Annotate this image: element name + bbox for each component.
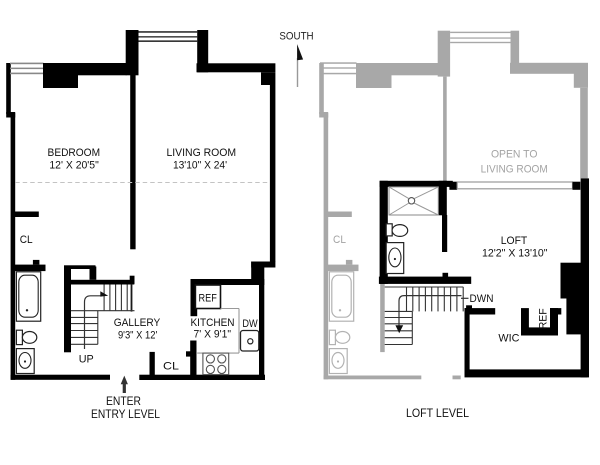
svg-text:REF: REF <box>537 308 549 329</box>
svg-text:12'2" X 13'10": 12'2" X 13'10" <box>482 248 548 260</box>
svg-text:9'3" X 12': 9'3" X 12' <box>118 329 157 341</box>
svg-text:BEDROOM: BEDROOM <box>48 147 101 159</box>
svg-text:CL: CL <box>333 234 346 246</box>
svg-text:LOFT: LOFT <box>501 235 528 247</box>
svg-text:CL: CL <box>20 234 33 246</box>
svg-text:SOUTH: SOUTH <box>279 31 313 43</box>
svg-text:UP: UP <box>79 353 94 365</box>
svg-text:WIC: WIC <box>498 333 519 345</box>
svg-text:CL: CL <box>163 361 179 373</box>
svg-text:DWN: DWN <box>470 293 494 305</box>
svg-text:DW: DW <box>242 318 258 330</box>
svg-text:LIVING ROOM: LIVING ROOM <box>481 164 548 176</box>
svg-text:KITCHEN: KITCHEN <box>191 317 235 329</box>
svg-text:GALLERY: GALLERY <box>114 317 161 329</box>
svg-text:13'10" X 24': 13'10" X 24' <box>173 159 227 171</box>
svg-text:12' X 20'5": 12' X 20'5" <box>49 159 98 171</box>
svg-text:REF: REF <box>199 292 218 304</box>
svg-text:ENTRY LEVEL: ENTRY LEVEL <box>91 407 160 421</box>
svg-text:OPEN TO: OPEN TO <box>491 148 538 160</box>
svg-text:LOFT LEVEL: LOFT LEVEL <box>406 406 469 420</box>
svg-text:7' X 9'1": 7' X 9'1" <box>194 328 232 340</box>
svg-text:LIVING ROOM: LIVING ROOM <box>166 147 236 159</box>
